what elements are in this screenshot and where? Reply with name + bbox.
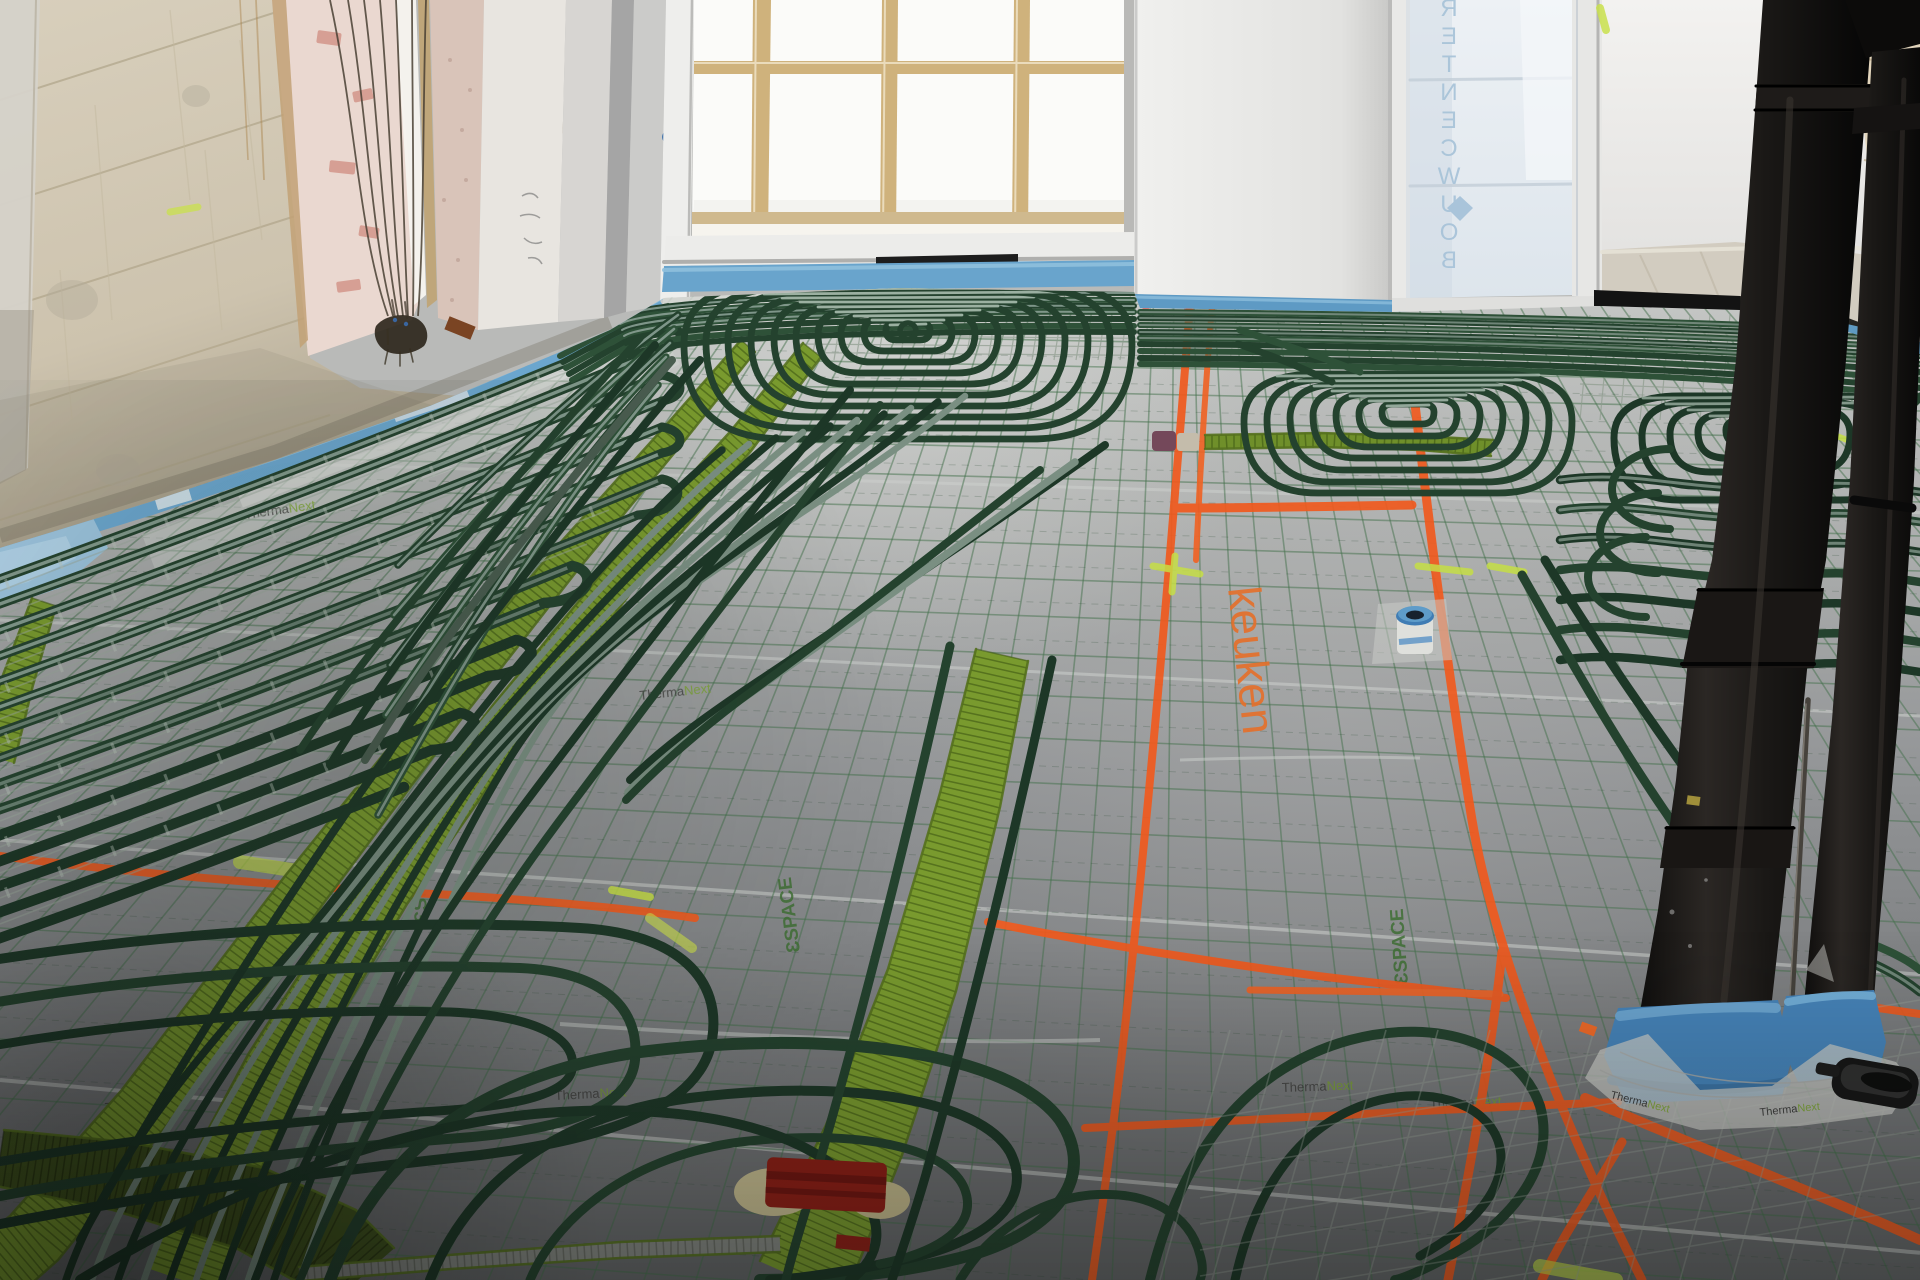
svg-text:C: C (1440, 135, 1457, 162)
svg-text:N: N (1440, 79, 1457, 106)
svg-text:O: O (1440, 219, 1459, 246)
svg-text:B: B (1441, 247, 1457, 274)
svg-text:R: R (1440, 0, 1457, 22)
svg-text:W: W (1437, 163, 1460, 190)
svg-text:E: E (1441, 107, 1457, 134)
svg-text:E: E (1441, 23, 1457, 50)
svg-text:T: T (1441, 51, 1456, 78)
